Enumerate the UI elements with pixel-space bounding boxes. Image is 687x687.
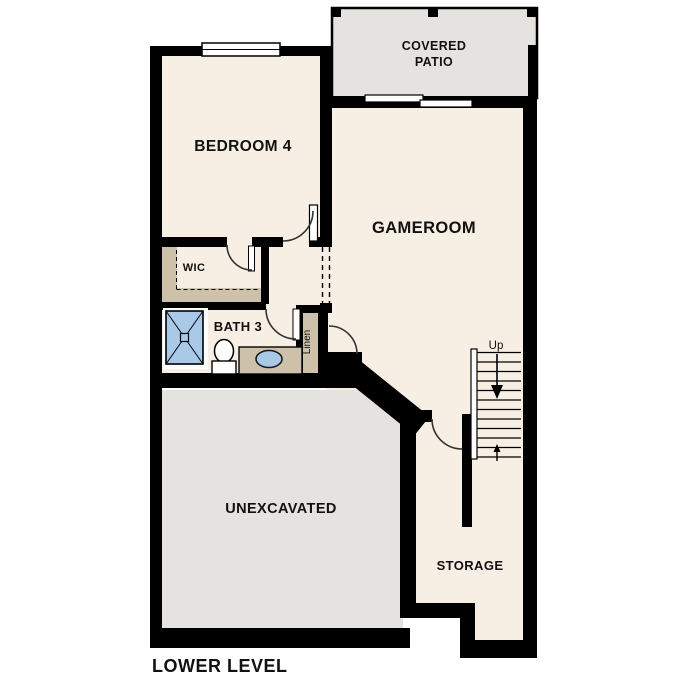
wall-bath-bottom [150,373,372,388]
wall-patio-right [528,45,537,98]
wic-shelf-bottom [162,288,261,302]
bedroom4-label: BEDROOM 4 [194,138,291,155]
storage-floor-extension [470,450,523,646]
wall-right [523,96,537,658]
covered-patio-label-line2: PATIO [415,55,453,69]
wall-left [150,46,162,648]
floor-plan-svg: COVERED PATIO BEDROOM 4 GAMEROOM WIC BAT… [0,0,687,687]
patio-post-right [527,7,537,17]
stairs-up-label: Up [489,340,504,352]
plan-title: LOWER LEVEL [152,656,288,676]
wall-wic-right [261,247,269,304]
gameroom-label: GAMEROOM [372,219,476,237]
sink-icon [256,351,282,368]
patio-post-left [331,7,341,17]
patio-slider-panel-1 [365,95,423,102]
linen-label: Linen [302,330,313,354]
stair-rail [471,349,477,459]
patio-post-middle [428,7,438,17]
unexcavated-label: UNEXCAVATED [225,501,337,517]
bath3-label: BATH 3 [214,319,262,334]
wall-bedroom-gameroom [320,46,332,247]
wall-bedroom-bottom-left [150,237,227,247]
wall-bedroom-bottom-mid [252,237,283,247]
wic-door-leaf [249,246,255,271]
covered-patio-label-line1: COVERED [402,39,467,53]
toilet-icon [215,340,234,363]
toilet-tank [212,361,236,374]
storage-label: STORAGE [437,558,504,573]
floor-plan: COVERED PATIO BEDROOM 4 GAMEROOM WIC BAT… [0,0,687,687]
patio-slider-panel-2 [420,100,472,107]
wic-label: WIC [183,262,206,274]
shower-drain [181,334,189,342]
patio-slab [332,8,537,98]
bath3-door-leaf [293,309,300,340]
wall-unexcavated-bottom [150,628,410,648]
wall-storage-left [400,420,416,610]
